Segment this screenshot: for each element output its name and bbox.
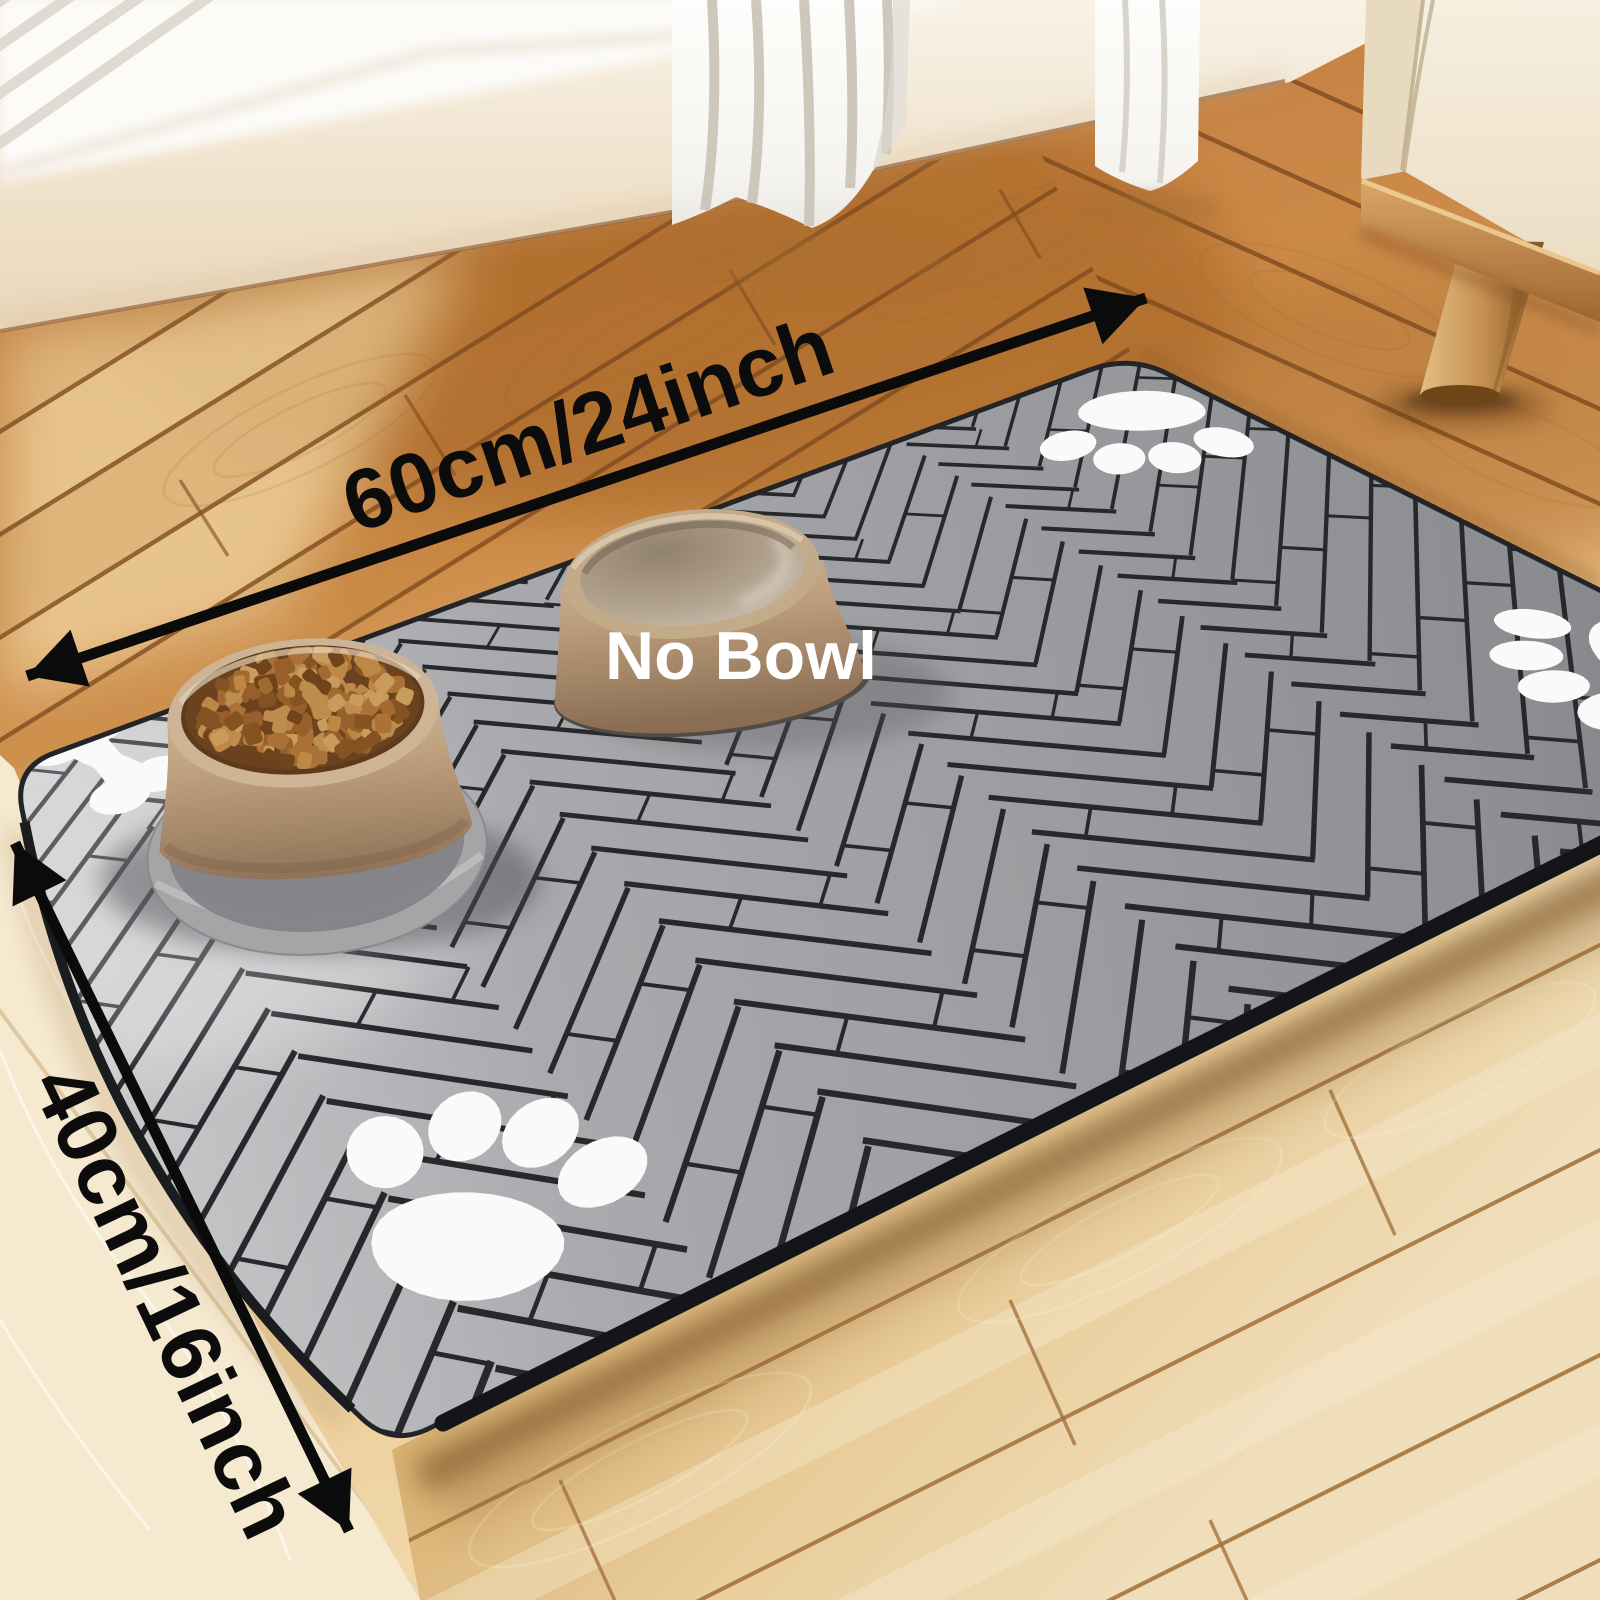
svg-text:No Bowl: No Bowl [605, 618, 877, 694]
